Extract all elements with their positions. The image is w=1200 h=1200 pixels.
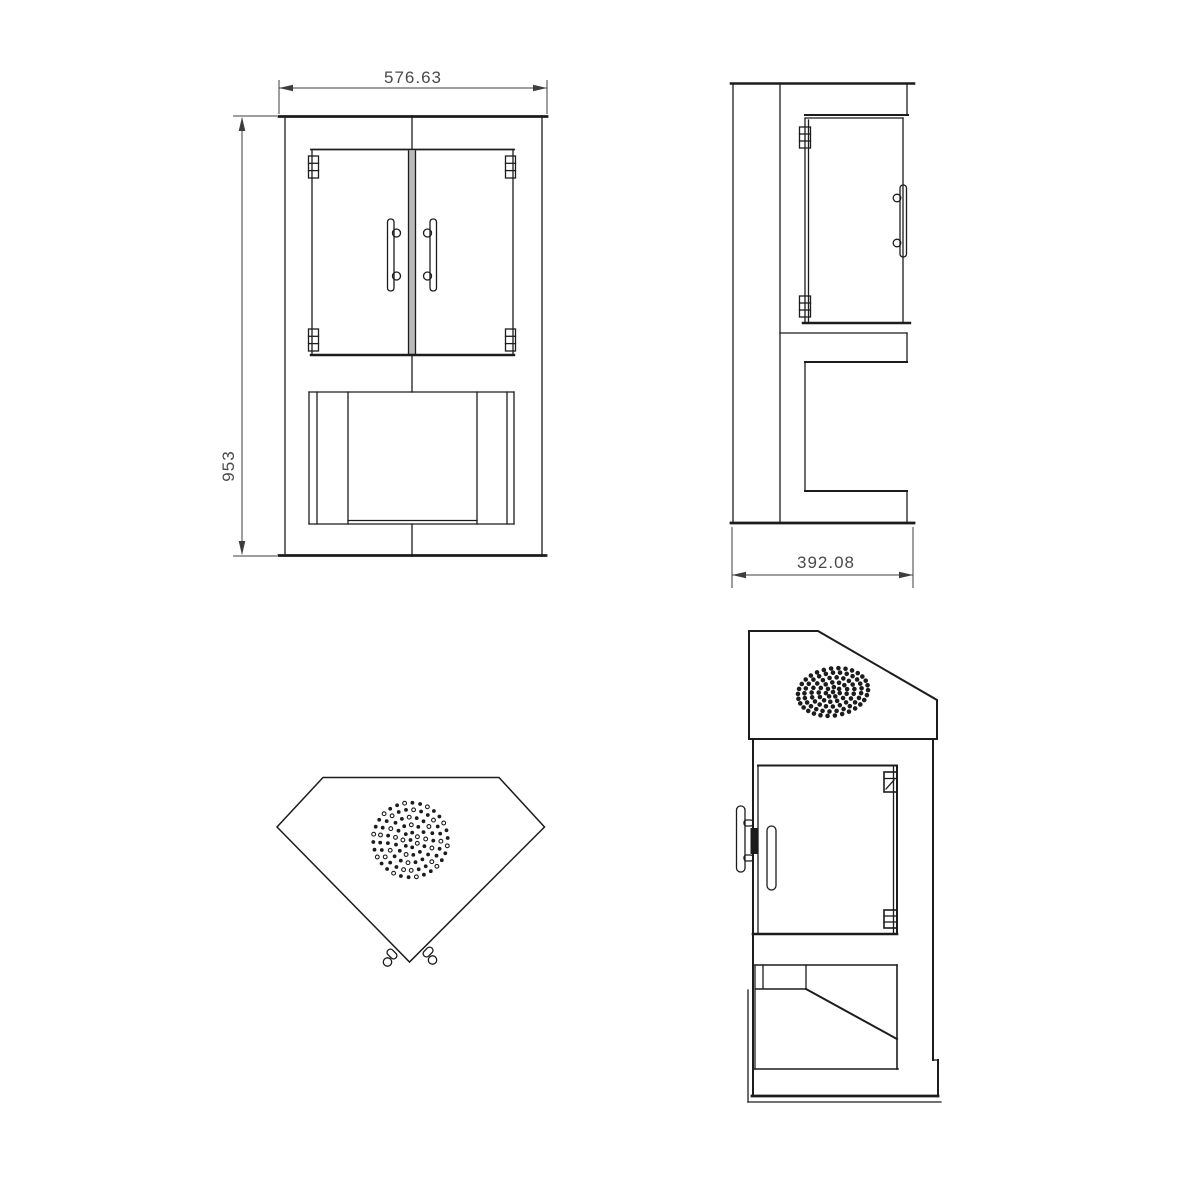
grille-hole <box>415 875 419 879</box>
grille-hole <box>445 828 449 832</box>
grille-hole <box>424 864 428 868</box>
side-cabinet-outline <box>731 84 914 524</box>
hinge-bottom-right <box>506 329 516 351</box>
perspective-shelf <box>754 965 898 1069</box>
hinge-top-right <box>884 772 897 792</box>
grille-hole <box>440 858 444 862</box>
hood <box>749 631 937 739</box>
grille-hole <box>817 694 822 699</box>
grille-hole <box>847 704 852 709</box>
grille-hole <box>430 831 434 835</box>
grille-hole <box>835 698 840 703</box>
grille-hole <box>823 704 828 709</box>
grille-hole <box>436 825 440 829</box>
grille-hole <box>836 686 841 691</box>
grille-hole <box>389 827 393 831</box>
front-width-label: 576.63 <box>384 68 442 87</box>
grille-hole <box>395 865 399 869</box>
grille-hole <box>419 810 423 814</box>
grille-hole <box>430 860 434 864</box>
grille-hole <box>404 832 408 836</box>
arrow-up-icon <box>239 117 246 131</box>
grille-hole <box>380 848 384 852</box>
grille-hole <box>418 850 422 854</box>
grille-hole <box>837 690 842 695</box>
grille-hole <box>435 854 439 858</box>
grille-hole <box>403 801 407 805</box>
grille-hole <box>808 673 813 678</box>
grille-hole <box>404 808 408 812</box>
grille-hole <box>806 708 811 713</box>
grille-hole <box>394 821 398 825</box>
grille-hole <box>843 666 848 671</box>
speaker-grille-plan <box>371 801 449 879</box>
grille-hole <box>840 695 845 700</box>
grille-hole <box>798 701 803 706</box>
grille-hole <box>833 694 838 699</box>
grille-hole <box>851 691 856 696</box>
grille-hole <box>445 844 449 848</box>
grille-hole <box>397 810 401 814</box>
grille-hole <box>404 844 408 848</box>
grille-hole <box>802 695 807 700</box>
grille-hole <box>834 675 839 680</box>
grille-hole <box>814 706 819 711</box>
grille-hole <box>827 709 832 714</box>
door-handle-left[interactable] <box>388 219 401 291</box>
grille-hole <box>426 813 430 817</box>
handle-mount <box>751 828 758 854</box>
grille-hole <box>855 670 860 675</box>
grille-hole <box>827 675 832 680</box>
hinge-bottom-left <box>309 329 319 351</box>
grille-hole <box>426 853 430 857</box>
grille-hole <box>394 843 398 847</box>
grille-hole <box>823 682 828 687</box>
grille-hole <box>446 836 450 840</box>
grille-hole <box>429 869 433 873</box>
grille-hole <box>828 666 833 671</box>
plan-view <box>277 778 545 967</box>
grille-hole <box>431 839 435 843</box>
grille-hole <box>820 677 825 682</box>
grille-hole <box>841 676 846 681</box>
grille-hole <box>411 853 415 857</box>
grille-hole <box>846 709 851 714</box>
grille-hole <box>796 686 801 691</box>
grille-hole <box>404 853 408 857</box>
grille-hole <box>385 867 389 871</box>
grille-hole <box>855 677 860 682</box>
grille-hole <box>401 838 405 842</box>
grille-hole <box>863 678 868 683</box>
grille-hole <box>808 704 813 709</box>
grille-hole <box>846 678 851 683</box>
grille-hole <box>375 855 379 859</box>
grille-hole <box>422 873 426 877</box>
grille-hole <box>804 700 809 705</box>
grille-hole <box>394 836 398 840</box>
grille-hole <box>812 699 817 704</box>
grille-hole <box>801 705 806 710</box>
grille-hole <box>415 841 419 845</box>
grille-hole <box>430 846 434 850</box>
grille-hole <box>372 832 376 836</box>
grille-hole <box>393 854 397 858</box>
grille-hole <box>844 691 849 696</box>
grille-hole <box>843 700 848 705</box>
grille-hole <box>795 691 800 696</box>
grille-hole <box>828 699 833 704</box>
grille-hole <box>378 841 382 845</box>
grille-hole <box>406 861 410 865</box>
front-height-label: 953 <box>219 450 238 481</box>
door-handle-side[interactable] <box>893 185 906 257</box>
grille-hole <box>418 802 422 806</box>
grille-hole <box>830 689 835 694</box>
door-handle-inner[interactable] <box>767 826 776 890</box>
arrow-right-icon <box>533 85 547 92</box>
grille-hole <box>442 821 446 825</box>
door-knob-right[interactable] <box>422 946 437 964</box>
grille-hole <box>383 855 387 859</box>
grille-hole <box>850 674 855 679</box>
grille-hole <box>809 690 814 695</box>
grille-hole <box>398 849 402 853</box>
grille-hole <box>848 696 853 701</box>
grille-hole <box>412 808 416 812</box>
hinge-bottom-right <box>884 910 897 928</box>
grille-hole <box>815 681 820 686</box>
perspective-view <box>737 631 942 1102</box>
grille-hole <box>853 706 858 711</box>
grille-hole <box>386 834 390 838</box>
grille-hole <box>397 829 401 833</box>
grille-hole <box>862 697 867 702</box>
perspective-door <box>737 766 898 935</box>
grille-hole <box>427 825 431 829</box>
arrow-right-icon <box>899 572 913 579</box>
grille-hole <box>439 839 443 843</box>
grille-hole <box>410 831 414 835</box>
grille-hole <box>415 816 419 820</box>
grille-hole <box>810 695 815 700</box>
front-view: 576.63 953 <box>219 68 547 556</box>
grille-hole <box>421 858 425 862</box>
grille-hole <box>377 818 381 822</box>
grille-hole <box>834 708 839 713</box>
grille-hole <box>852 700 857 705</box>
grille-hole <box>385 819 389 823</box>
grille-hole <box>817 702 822 707</box>
grille-hole <box>409 823 413 827</box>
grille-hole <box>796 696 801 701</box>
grille-hole <box>859 686 864 691</box>
grille-hole <box>831 684 836 689</box>
grille-hole <box>844 671 849 676</box>
speaker-grille-perspective <box>792 661 874 724</box>
grille-hole <box>381 826 385 830</box>
grille-hole <box>818 713 823 718</box>
grille-hole <box>811 677 816 682</box>
grille-hole <box>423 844 427 848</box>
grille-hole <box>379 833 383 837</box>
grille-hole <box>830 670 835 675</box>
grille-hole <box>821 698 826 703</box>
grille-hole <box>380 862 384 866</box>
grille-hole <box>811 711 816 716</box>
front-height-dimension: 953 <box>219 116 277 556</box>
grille-hole <box>395 803 399 807</box>
grille-hole <box>802 691 807 696</box>
hinge-top-right <box>506 156 516 178</box>
plan-outline <box>277 778 545 963</box>
grille-hole <box>432 818 436 822</box>
grille-hole <box>830 704 835 709</box>
grille-hole <box>386 841 390 845</box>
grille-hole <box>850 682 855 687</box>
grille-hole <box>836 680 841 685</box>
technical-drawing-canvas: 576.63 953 <box>0 0 1200 1200</box>
grille-hole <box>860 674 865 679</box>
grille-hole <box>424 837 428 841</box>
grille-hole <box>864 693 869 698</box>
grille-hole <box>858 690 863 695</box>
grille-hole <box>409 838 413 842</box>
grille-hole <box>426 805 430 809</box>
grille-hole <box>416 835 420 839</box>
grille-hole <box>841 706 846 711</box>
front-width-dimension: 576.63 <box>279 68 547 114</box>
grille-hole <box>382 812 386 816</box>
grille-hole <box>830 680 835 685</box>
grille-hole <box>399 859 403 863</box>
grille-hole <box>388 807 392 811</box>
front-doors <box>309 150 516 356</box>
arrow-left-icon <box>732 572 746 579</box>
grille-hole <box>844 687 849 692</box>
grille-hole <box>856 695 861 700</box>
door-handle-external[interactable] <box>737 806 758 872</box>
grille-hole <box>865 687 870 692</box>
grille-hole <box>852 686 857 691</box>
grille-hole <box>402 824 406 828</box>
grille-hole <box>438 832 442 836</box>
grille-hole <box>402 868 406 872</box>
grille-hole <box>390 814 394 818</box>
arrow-down-icon <box>239 541 246 555</box>
grille-hole <box>399 874 403 878</box>
grille-hole <box>443 851 447 855</box>
grille-hole <box>407 875 411 879</box>
grille-hole <box>411 801 415 805</box>
grille-hole <box>438 815 442 819</box>
grille-hole <box>816 690 821 695</box>
grille-hole <box>832 713 837 718</box>
grille-hole <box>837 670 842 675</box>
grille-hole <box>840 711 845 716</box>
grille-hole <box>811 685 816 690</box>
front-open-shelf <box>309 392 514 524</box>
door-handle-right[interactable] <box>424 219 437 291</box>
grille-hole <box>806 681 811 686</box>
grille-hole <box>388 848 392 852</box>
grille-hole <box>373 848 377 852</box>
grille-hole <box>849 668 854 673</box>
grille-hole <box>438 847 442 851</box>
side-door <box>800 118 911 323</box>
grille-hole <box>799 681 804 686</box>
grille-hole <box>371 840 375 844</box>
grille-hole <box>422 819 426 823</box>
corner-cabinet-drawing: 576.63 953 <box>0 0 1200 1200</box>
grille-hole <box>865 683 870 688</box>
grille-hole <box>407 815 411 819</box>
grille-hole <box>400 817 404 821</box>
grille-hole <box>858 702 863 707</box>
grille-hole <box>410 846 414 850</box>
grille-hole <box>409 869 413 873</box>
side-view: 392.08 <box>731 84 914 589</box>
grille-hole <box>818 685 823 690</box>
grille-hole <box>803 686 808 691</box>
grille-hole <box>825 713 830 718</box>
grille-hole <box>417 867 421 871</box>
door-knob-left[interactable] <box>383 948 398 966</box>
grille-hole <box>837 703 842 708</box>
perspective-body <box>748 739 941 1102</box>
grille-hole <box>435 864 439 868</box>
grille-hole <box>416 825 420 829</box>
hinge-top-left <box>309 156 319 178</box>
grille-hole <box>392 871 396 875</box>
grille-hole <box>388 861 392 865</box>
grille-hole <box>374 825 378 829</box>
side-depth-dimension: 392.08 <box>732 527 913 588</box>
grille-hole <box>842 683 847 688</box>
grille-hole <box>414 860 418 864</box>
grille-hole <box>422 830 426 834</box>
side-depth-label: 392.08 <box>797 553 855 572</box>
grille-hole <box>820 708 825 713</box>
grille-hole <box>858 681 863 686</box>
grille-hole <box>836 666 841 671</box>
grille-hole <box>803 677 808 682</box>
grille-hole <box>825 686 830 691</box>
arrow-left-icon <box>279 85 293 92</box>
grille-hole <box>432 809 436 813</box>
